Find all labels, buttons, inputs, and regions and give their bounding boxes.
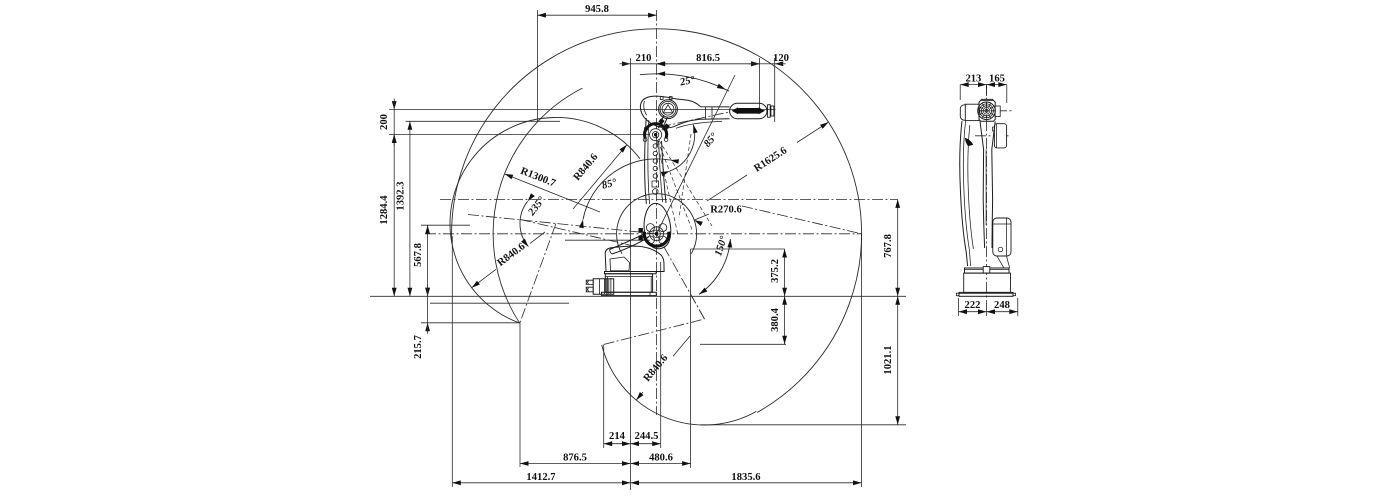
svg-text:R270.6: R270.6 — [710, 205, 742, 216]
svg-text:200: 200 — [379, 114, 390, 130]
svg-text:1412.7: 1412.7 — [526, 472, 556, 483]
svg-text:1021.1: 1021.1 — [883, 345, 894, 374]
svg-text:375.2: 375.2 — [770, 259, 781, 283]
svg-text:222: 222 — [965, 300, 981, 311]
svg-text:1835.6: 1835.6 — [731, 472, 760, 483]
svg-text:767.8: 767.8 — [883, 234, 894, 258]
svg-text:567.8: 567.8 — [413, 243, 424, 267]
svg-text:215.7: 215.7 — [413, 334, 424, 359]
svg-text:248: 248 — [994, 300, 1010, 311]
svg-text:945.8: 945.8 — [585, 4, 609, 15]
svg-text:380.4: 380.4 — [770, 307, 781, 332]
svg-text:165: 165 — [989, 74, 1005, 85]
svg-text:1284.4: 1284.4 — [379, 195, 390, 225]
svg-text:1392.3: 1392.3 — [396, 181, 407, 210]
svg-text:816.5: 816.5 — [696, 53, 720, 64]
svg-text:876.5: 876.5 — [563, 453, 587, 464]
svg-text:210: 210 — [636, 53, 652, 64]
svg-text:213: 213 — [965, 74, 981, 85]
svg-text:244.5: 244.5 — [635, 431, 659, 442]
svg-text:120: 120 — [773, 53, 789, 64]
svg-text:480.6: 480.6 — [649, 453, 673, 464]
svg-text:214: 214 — [609, 431, 626, 442]
